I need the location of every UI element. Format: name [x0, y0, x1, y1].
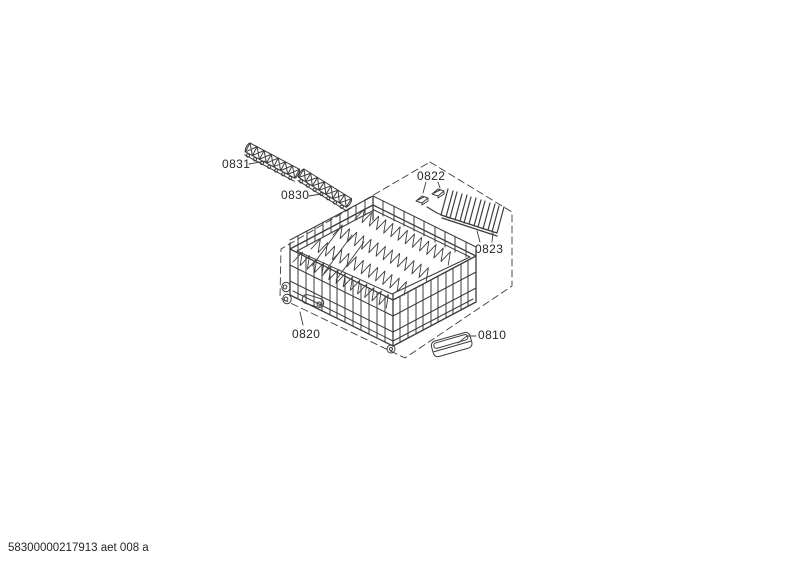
part-0822-clips [416, 189, 444, 205]
exploded-parts-drawing [0, 0, 800, 566]
part-0831-insert-comb [242, 142, 300, 182]
part-label-0831: 0831 [222, 158, 250, 170]
part-label-0822: 0822 [417, 170, 445, 182]
part-0810-tray [430, 331, 473, 357]
basket-front-roller-icon [387, 345, 395, 353]
parts-diagram-page: 0831 0830 0822 0823 0820 0810 5830000021… [0, 0, 800, 566]
part-label-0830: 0830 [281, 189, 309, 201]
document-number: 58300000217913 aet 008 a [8, 543, 149, 555]
part-label-0810: 0810 [478, 329, 506, 341]
part-label-0820: 0820 [292, 328, 320, 340]
part-label-0823: 0823 [475, 243, 503, 255]
